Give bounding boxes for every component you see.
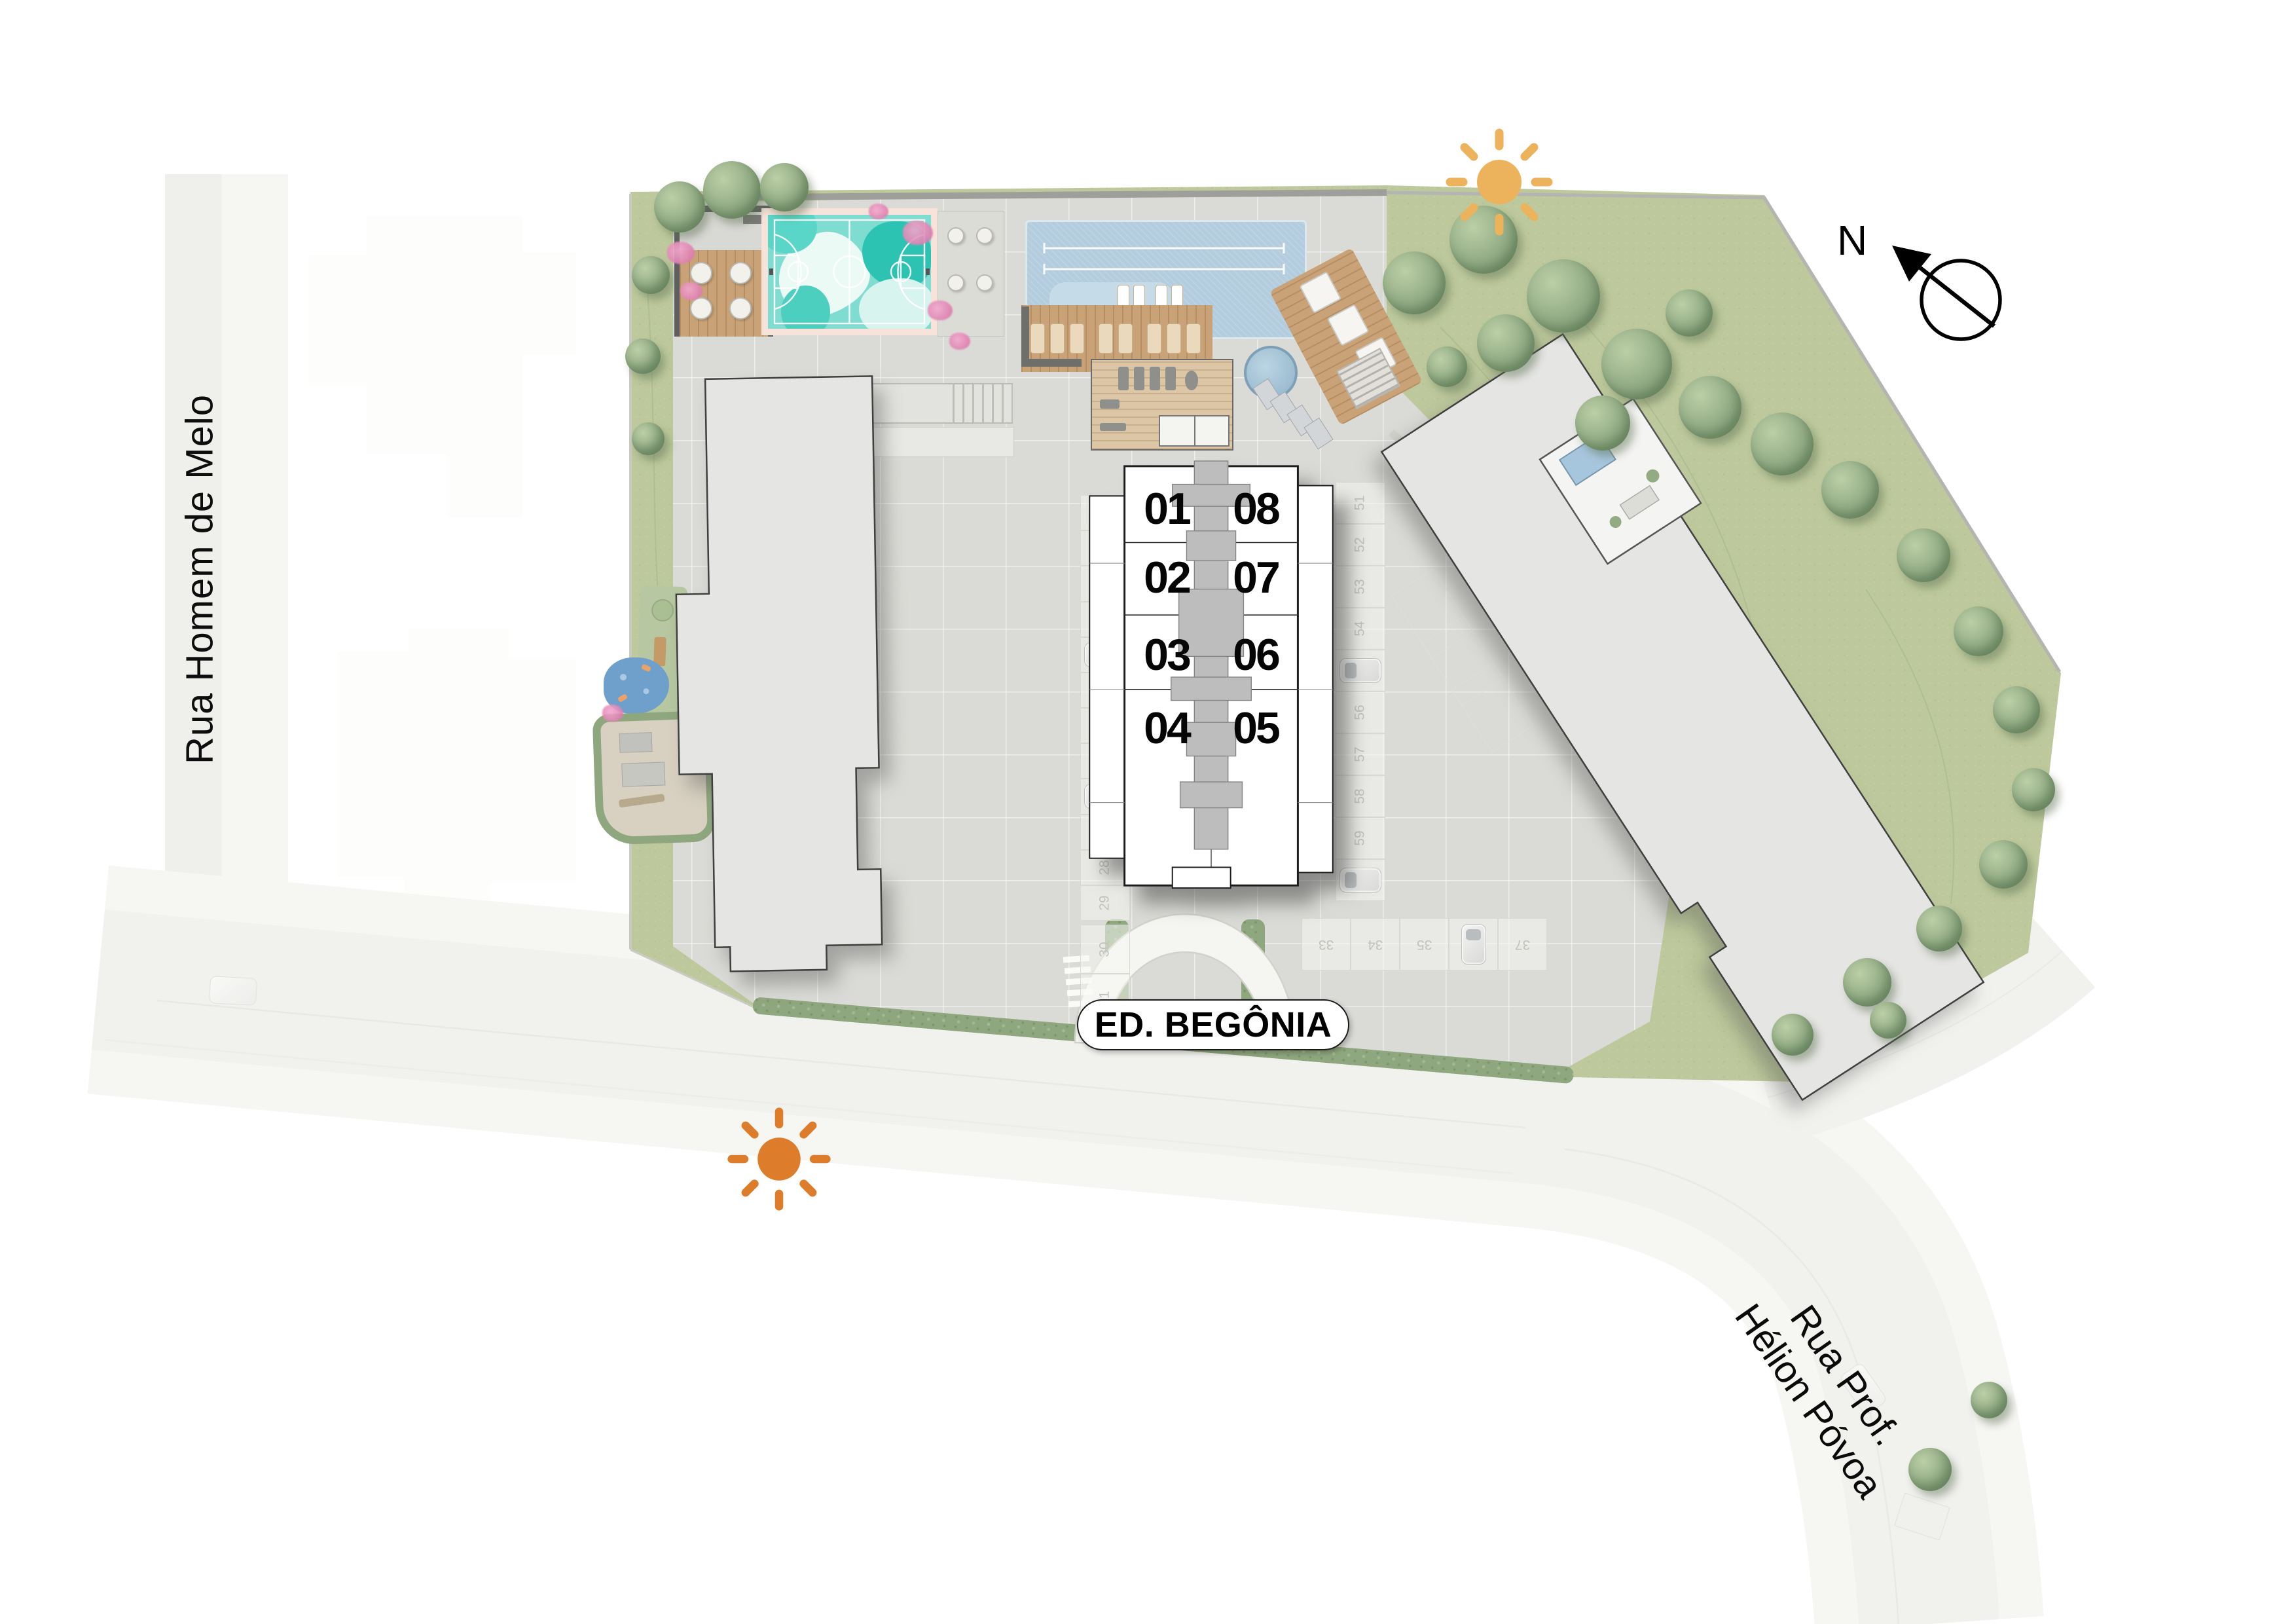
tree-icon [1477,314,1535,372]
tree-icon [625,339,661,374]
tree-icon [2012,768,2055,811]
tree-icon [1383,251,1446,314]
tree-icon [1772,1014,1813,1056]
north-arrow-icon [1879,236,2036,354]
unit-02[interactable]: 02 [1144,552,1190,603]
tree-icon [1979,840,2028,889]
tree-icon [1601,329,1672,399]
tree-icon [1527,259,1600,333]
flower-patch-icon [928,301,953,320]
site-plan: Rua Homem de Melo [0,0,2296,1624]
tree-icon [1666,289,1713,337]
flower-patch-icon [949,333,970,350]
tree-icon [1751,413,1813,475]
tree-icon [1916,906,1962,951]
tree-icon [654,181,705,232]
tree-icon [1427,346,1467,387]
tree-icon [703,161,761,219]
tree-icon [1870,1002,1906,1039]
unit-08[interactable]: 08 [1233,483,1279,534]
building-name-badge: ED. BEGÔNIA [1077,999,1349,1050]
tree-icon [760,163,809,212]
tree-icon [1679,376,1741,439]
flower-patch-icon [869,204,888,219]
tree-icon [632,422,665,455]
sun-icon [1444,126,1555,238]
unit-07[interactable]: 07 [1233,552,1279,603]
tree-icon [632,256,670,294]
flower-patch-icon [680,282,702,300]
unit-06[interactable]: 06 [1233,629,1279,680]
tree-icon [1993,686,2040,733]
flower-patch-icon [903,221,933,245]
flower-patch-icon [667,242,695,264]
tree-icon [1821,461,1879,519]
unit-05[interactable]: 05 [1233,703,1279,754]
tree-icon [1897,528,1950,582]
key-plan: 01 08 02 07 03 06 04 05 [1088,461,1336,893]
unit-01[interactable]: 01 [1144,483,1190,534]
compass-north-label: N [1837,216,1867,265]
tree-icon [1575,396,1630,451]
unit-04[interactable]: 04 [1144,703,1190,754]
unit-03[interactable]: 03 [1144,629,1190,680]
tree-icon [1843,958,1891,1006]
flower-patch-icon [602,705,623,722]
tree-icon [1971,1382,2007,1418]
sun-icon [725,1105,833,1213]
tree-icon [1954,606,2003,656]
